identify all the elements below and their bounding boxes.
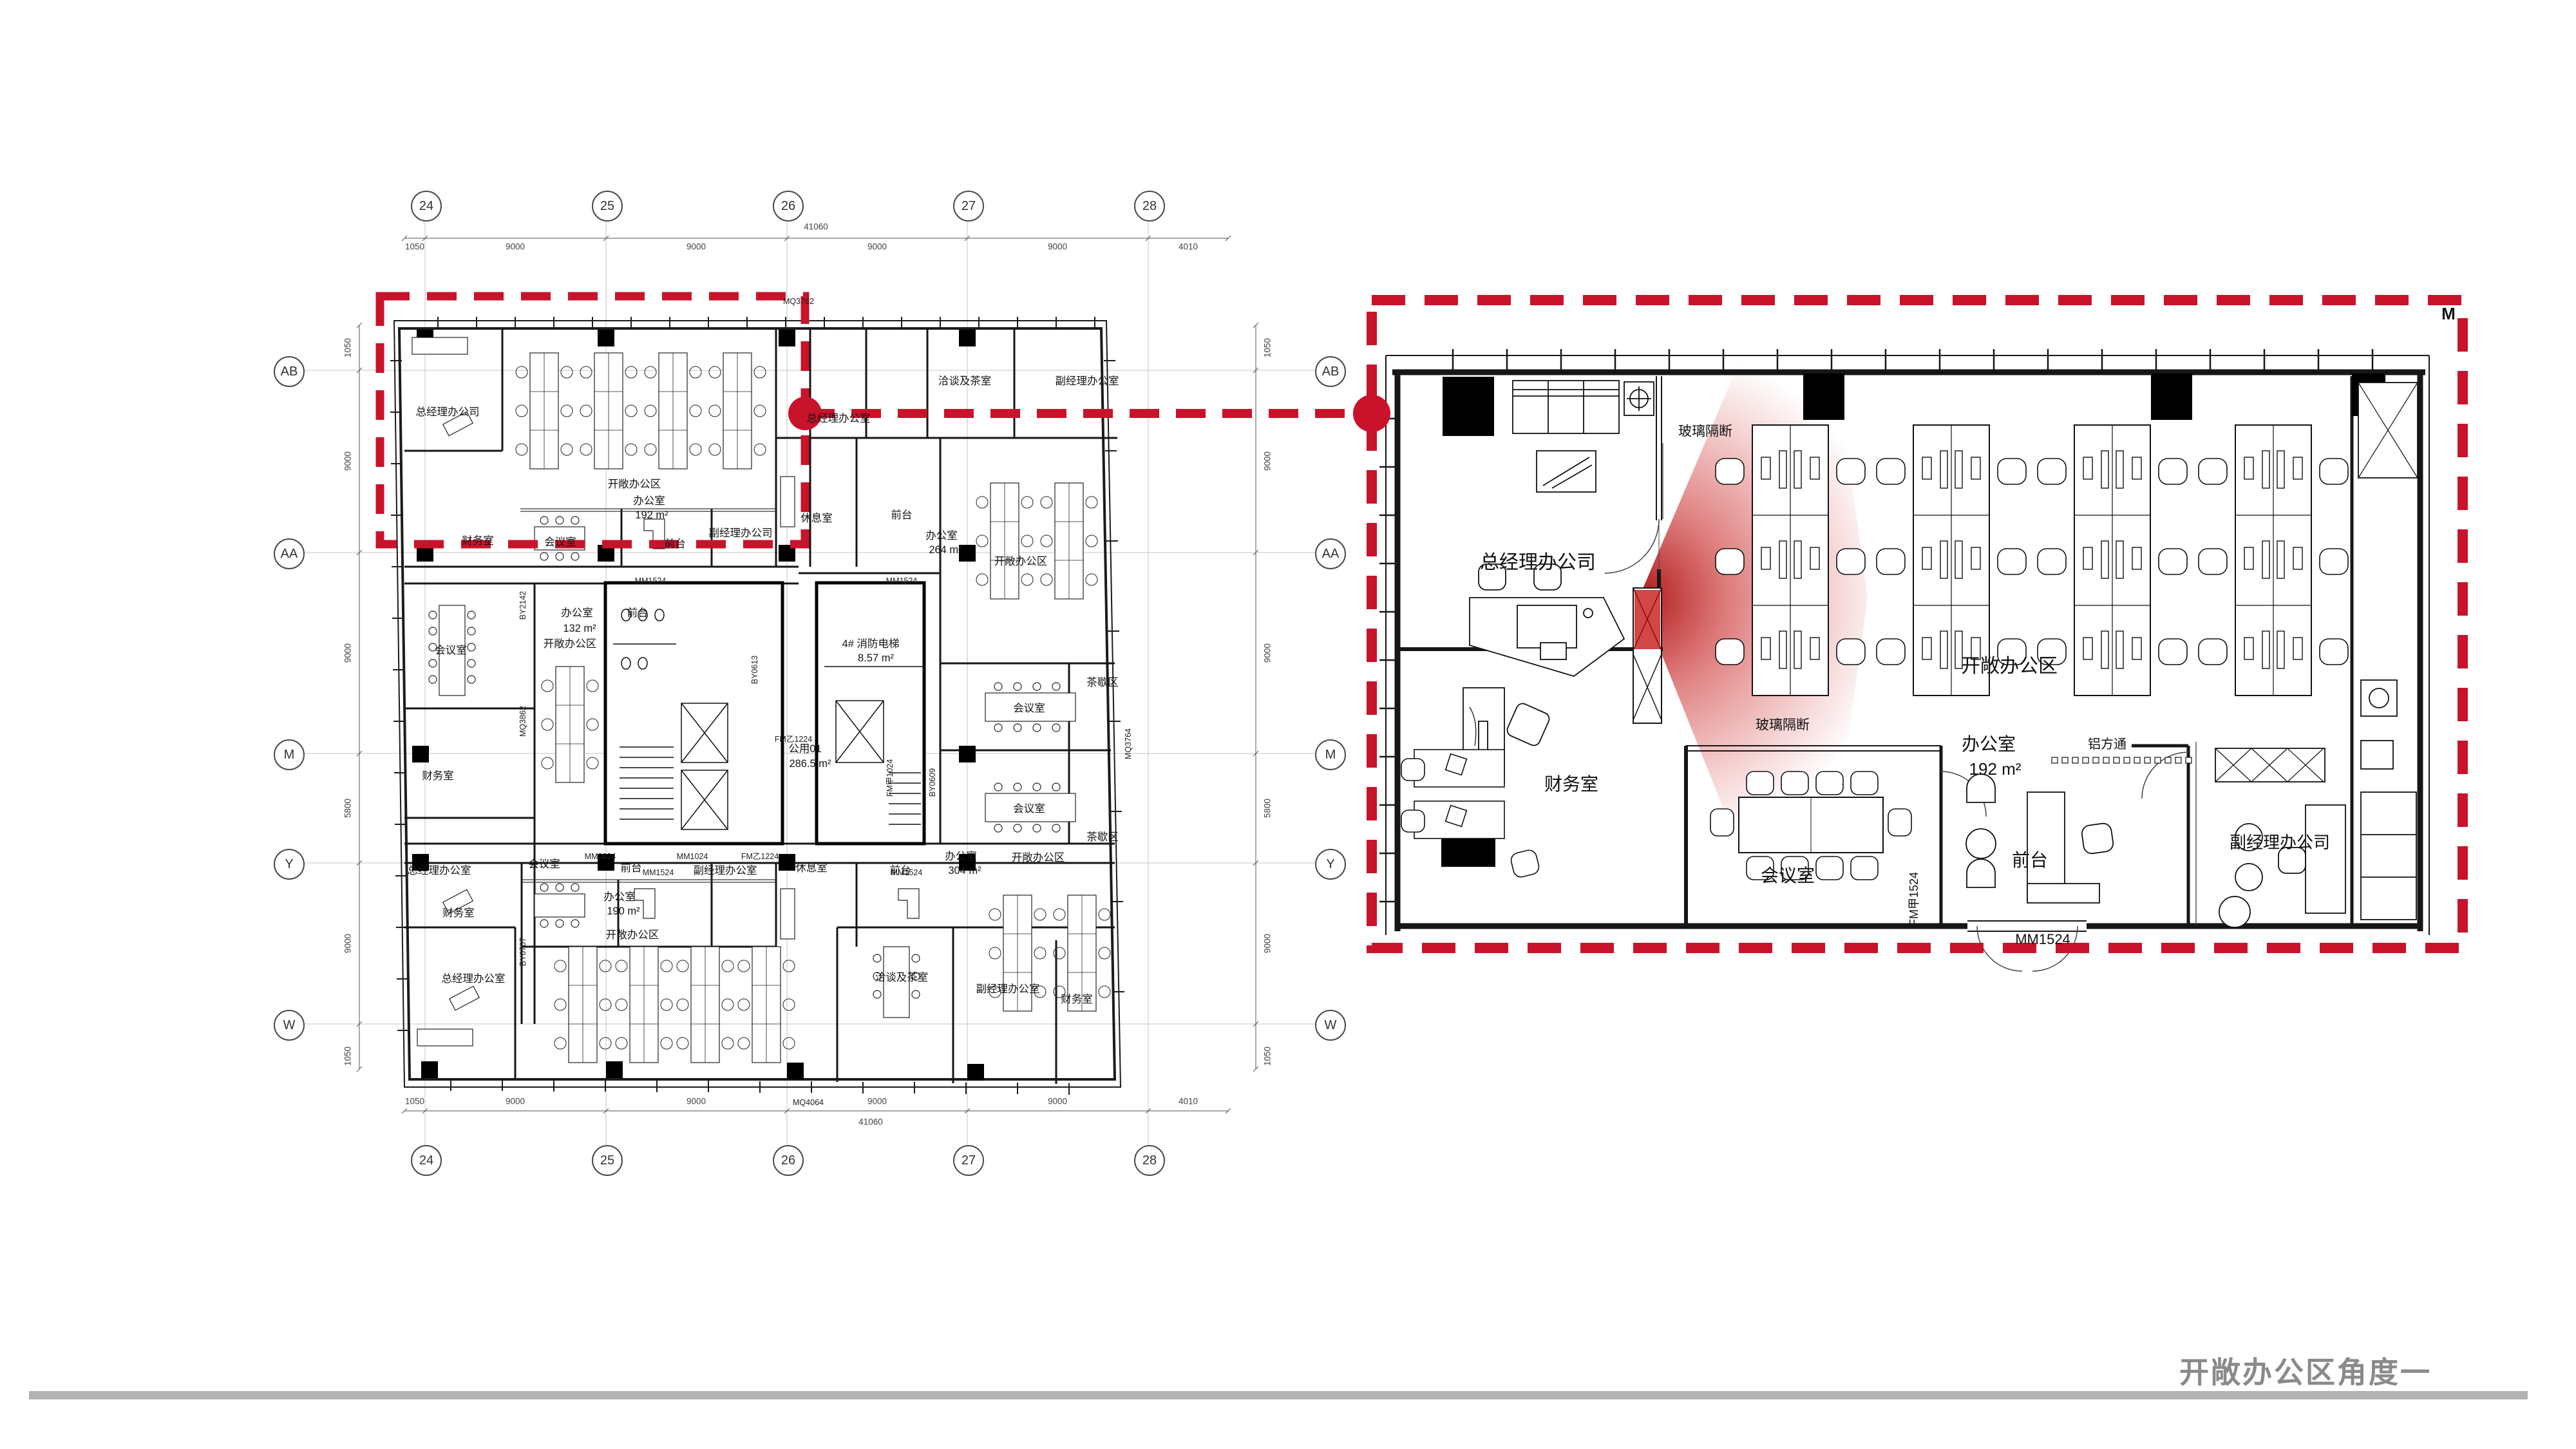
detail-workstations <box>1716 425 2348 696</box>
detail-plan <box>1379 300 2429 971</box>
cad-drawing <box>0 0 2576 1449</box>
footer-bar <box>29 1391 2528 1399</box>
sheet-caption: 开敞办公区角度一 <box>2179 1349 2432 1392</box>
leader-dot-left <box>788 397 822 430</box>
floorplan-sheet: 总经理办公司开敞办公区财务室会议室办公室192 m²前台副经理办公司休息室总经理… <box>0 0 2576 1449</box>
